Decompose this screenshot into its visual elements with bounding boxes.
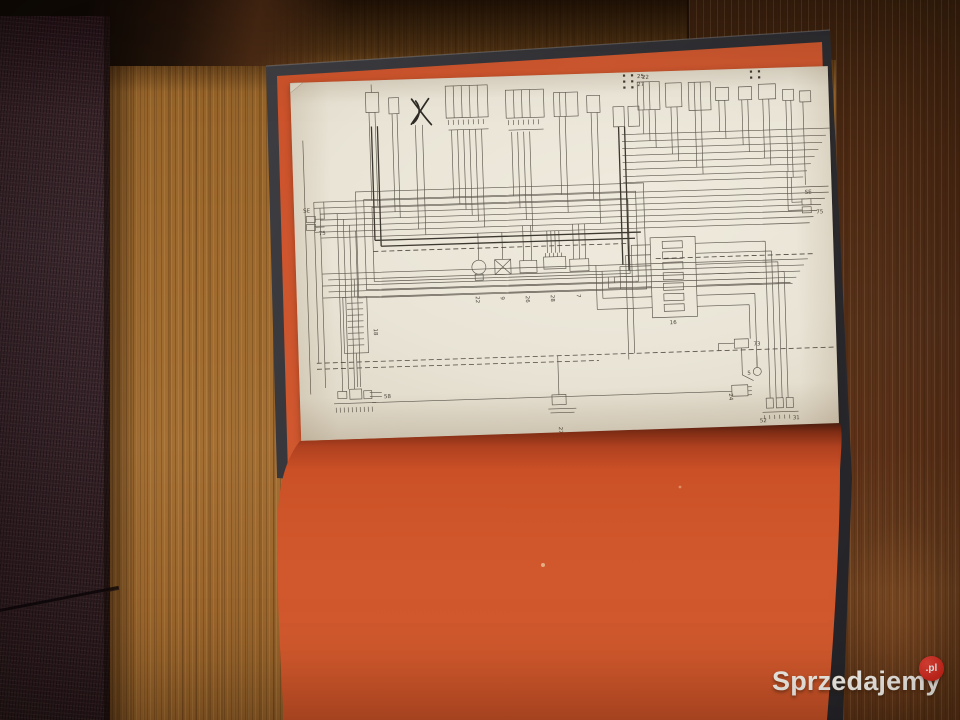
paper-speck-2: [679, 486, 682, 489]
watermark-tld-badge: .pl: [919, 656, 944, 681]
photo-scene: 2527221658245231573SE75SE75182722926287 …: [0, 0, 960, 720]
scene-overlay: [0, 0, 960, 720]
orange-bottom-page: [277, 423, 841, 720]
cover-edge-highlight: [266, 30, 830, 66]
paper-speck: [541, 563, 545, 567]
watermark: Sprzedajemy .pl: [772, 666, 960, 706]
watermark-brand: Sprzedajemy: [772, 666, 941, 697]
